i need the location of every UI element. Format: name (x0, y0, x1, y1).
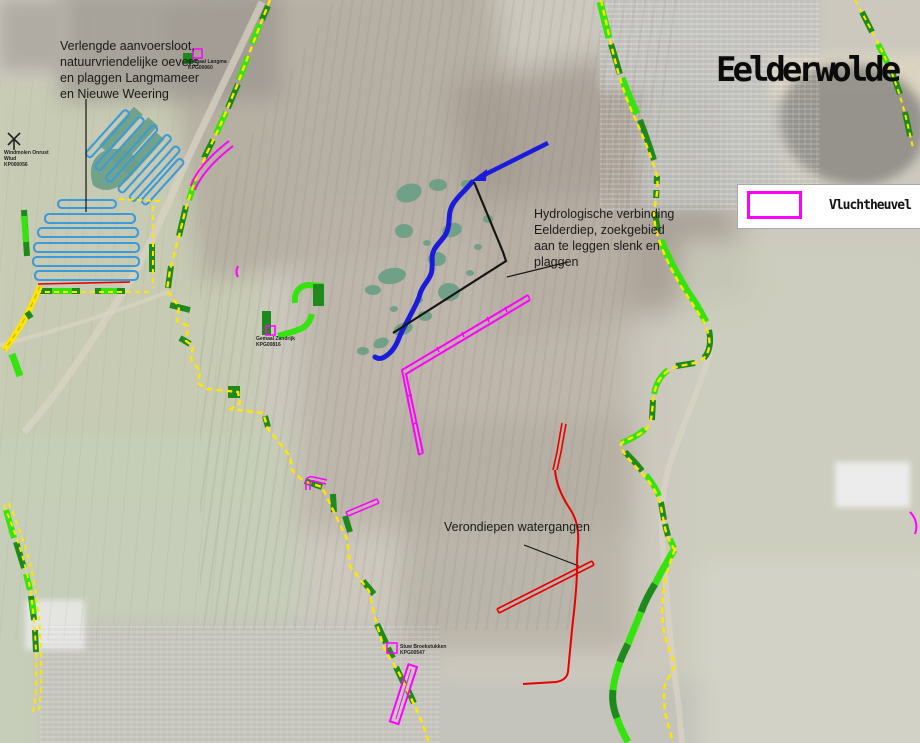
annotation-line: aan te leggen slenk en (534, 238, 674, 254)
boundary-green-bright (278, 314, 312, 336)
plaggen-blob (466, 270, 474, 276)
marker-label-line: KPG00060 (188, 66, 227, 72)
boundary-green-dark (170, 305, 190, 310)
point-markers (8, 49, 397, 653)
boundary-green-dark (27, 312, 31, 318)
vluchtheuvel-edge (910, 512, 916, 534)
ditch-loop (38, 228, 138, 237)
legend-vluchtheuvel-label: Vluchtheuvel (829, 198, 911, 213)
boundary-green-bright (613, 662, 620, 690)
annotation-line: en plaggen Langmameer (60, 70, 199, 86)
annotation-line: Verondiepen watergangen (444, 519, 590, 535)
ditch-loop (45, 214, 135, 223)
ditch-loop (35, 271, 138, 280)
windmolen-icon (8, 133, 20, 150)
boundary-green-bright (628, 612, 641, 644)
plaggen-blob (377, 266, 407, 287)
boundary-green-dark (620, 644, 628, 662)
annotation-line: Verlengde aanvoersloot, (60, 38, 199, 54)
marker-label-line: KP000056 (4, 163, 49, 169)
annotation-line: natuurvriendelijke oevers (60, 54, 199, 70)
boundary-green-dark (313, 284, 324, 306)
project-boundary-east (600, 0, 710, 743)
boundary-green-dark (179, 206, 186, 236)
legend-vluchtheuvel-swatch (747, 191, 802, 219)
annotation-line: en Nieuwe Weering (60, 86, 199, 102)
boundary-green-bright (12, 354, 20, 376)
annotation-verondiepen: Verondiepen watergangen (444, 519, 590, 535)
watergang-double (497, 561, 594, 613)
plaggen-areas (91, 107, 493, 355)
blue-arrowhead-icon (471, 169, 487, 181)
marker-label-line: KPG00816 (256, 343, 295, 349)
vluchtheuvel-rail (406, 300, 530, 453)
boundary-green-bright (24, 216, 26, 242)
map-canvas: Verlengde aanvoersloot, natuurvriendelij… (0, 0, 920, 743)
plaggen-blob (474, 244, 482, 250)
marker-label-gemaal-langma: Gemaal Langma KPG00060 (188, 60, 227, 72)
ditch-loop (58, 200, 116, 208)
boundary-green-bright (622, 429, 645, 443)
annotation-hydrologische: Hydrologische verbinding Eelderdiep, zoe… (534, 206, 674, 270)
annotation-line: Eelderdiep, zoekgebied (534, 222, 674, 238)
plaggen-blob (423, 240, 431, 246)
plaggen-blob (372, 336, 390, 351)
annotation-aanvoersloot: Verlengde aanvoersloot, natuurvriendelij… (60, 38, 199, 102)
plan-overlay (0, 0, 920, 743)
boundary-green-dark (16, 542, 24, 568)
marker-label-line: KPG00547 (400, 651, 446, 657)
annotation-line: plaggen (534, 254, 674, 270)
zoekgebied-line (393, 182, 506, 333)
red-line (38, 282, 130, 284)
map-title: Eelderwolde (716, 50, 897, 90)
watergang-double (553, 423, 566, 470)
plaggen-blob (390, 306, 398, 312)
plaggen-blob (395, 224, 413, 238)
plaggen-blob (394, 180, 425, 206)
boundary-green-dark (625, 452, 642, 471)
blue-arrow-shaft (484, 143, 548, 175)
boundary-green-dark (345, 516, 350, 532)
vluchtheuvel-small (237, 266, 239, 277)
marker-label-windmolen: Windmolen Onrust Wiud KP000056 (4, 151, 49, 168)
boundary-green-dark (641, 584, 655, 612)
roads (0, 2, 712, 743)
marker-label-gemaal-zandrijk: Gemaal Zandrijk KPG00816 (256, 337, 295, 349)
boundary-line (601, 0, 710, 550)
boundary-green-dark (640, 120, 654, 160)
marker-label-stuw: Stuw Broekstukken KPG00547 (400, 645, 446, 657)
legend-box: Vluchtheuvel (737, 184, 920, 229)
boundary-green-bright (617, 718, 628, 742)
boundary-green-dark (704, 330, 710, 358)
boundary-green-dark (613, 690, 617, 718)
boundary-green-dark (862, 12, 872, 32)
ditch-loop (33, 257, 139, 266)
plaggen-blob (429, 179, 447, 191)
leader-line-verondiepen (524, 545, 579, 566)
plaggen-blob (365, 285, 381, 295)
vluchtheuvel-diagonal (346, 499, 379, 516)
plaggen-blob (357, 347, 369, 355)
green-bank-center (262, 284, 324, 336)
annotation-line: Hydrologische verbinding (534, 206, 674, 222)
ditch-loop (34, 243, 139, 252)
boundary-southwest (4, 286, 41, 712)
